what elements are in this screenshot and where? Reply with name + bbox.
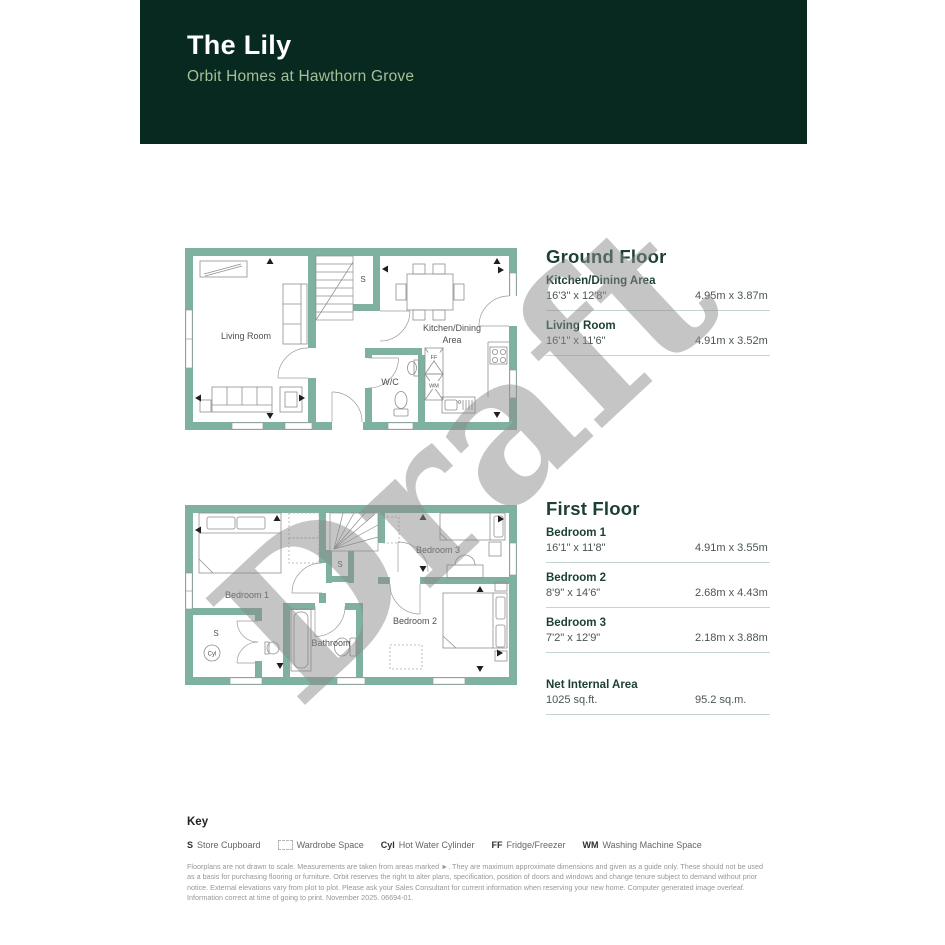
arrow-down-icon xyxy=(267,413,274,419)
bath xyxy=(291,609,311,671)
first-floor-plan: Bedroom 1 Bedroom 2 Bedroom 3 Bathroom S… xyxy=(185,505,517,685)
bedroom3-label: Bedroom 3 xyxy=(416,545,460,555)
ground-floor-heading: Ground Floor xyxy=(546,246,770,268)
arrow-up-icon xyxy=(420,514,427,520)
cupboard-label: S xyxy=(337,560,342,569)
side-table xyxy=(200,400,211,412)
sofa-main xyxy=(212,387,272,412)
dining-table xyxy=(396,264,464,320)
bedroom1-label: Bedroom 1 xyxy=(225,590,269,600)
page-subtitle: Orbit Homes at Hawthorn Grove xyxy=(187,68,414,86)
wardrobe-space-icon xyxy=(278,840,293,850)
fridge-freezer-unit xyxy=(425,348,443,374)
room-row: Bedroom 3 7'2" x 12'9" 2.18m x 3.88m xyxy=(546,617,770,653)
armchair xyxy=(280,387,302,412)
room-row: Kitchen/Dining Area 16'3" x 12'8" 4.95m … xyxy=(546,275,770,311)
room-metric: 4.91m x 3.55m xyxy=(695,542,768,554)
room-metric: 4.91m x 3.52m xyxy=(695,335,768,347)
bedroom3-chair xyxy=(447,555,483,578)
arrow-left-icon xyxy=(195,527,201,534)
row-divider xyxy=(546,607,770,608)
arrow-down-icon xyxy=(477,666,484,672)
first-stairs xyxy=(330,513,378,551)
ground-stairs xyxy=(316,256,353,320)
living-room-label: Living Room xyxy=(221,331,271,341)
key-item-washing: WM Washing Machine Space xyxy=(583,840,702,850)
room-row: Bedroom 1 16'1" x 11'8" 4.91m x 3.55m xyxy=(546,527,770,563)
arrow-down-icon xyxy=(494,412,501,418)
room-imperial: 16'1" x 11'8" xyxy=(546,542,606,554)
wc-basin xyxy=(408,360,420,376)
wardrobe-space-bed2 xyxy=(390,645,422,669)
row-divider xyxy=(546,562,770,563)
bed-single-3 xyxy=(440,513,505,540)
bedroom2-label: Bedroom 2 xyxy=(393,616,437,626)
row-divider xyxy=(546,355,770,356)
room-imperial: 8'9" x 14'6" xyxy=(546,587,600,599)
key-item-fridge: FF Fridge/Freezer xyxy=(491,840,565,850)
room-imperial: 7'2" x 12'9" xyxy=(546,632,600,644)
arrow-up-icon xyxy=(267,258,274,264)
nia-label: Net Internal Area xyxy=(546,679,770,691)
bed-double-2 xyxy=(443,593,507,648)
nia-imperial: 1025 sq.ft. xyxy=(546,694,597,706)
bed-double-1 xyxy=(199,513,281,573)
room-metric: 2.18m x 3.88m xyxy=(695,632,768,644)
arrow-up-icon xyxy=(274,515,281,521)
arrow-down-icon xyxy=(277,663,284,669)
ff-label: FF xyxy=(431,355,438,361)
store-label: S xyxy=(360,275,365,284)
store-label: S xyxy=(213,629,218,638)
page-title: The Lily xyxy=(187,30,291,61)
kitchen-label-line2: Area xyxy=(442,335,461,345)
room-name: Bedroom 3 xyxy=(546,617,770,629)
arrow-down-icon xyxy=(420,566,427,572)
room-imperial: 16'1" x 11'6" xyxy=(546,335,606,347)
bedside-table xyxy=(489,542,501,556)
header-banner: The Lily Orbit Homes at Hawthorn Grove xyxy=(140,0,807,144)
kitchen-label-line1: Kitchen/Dining xyxy=(423,323,481,333)
arrow-up-icon xyxy=(477,586,484,592)
key-heading: Key xyxy=(187,816,807,828)
arrow-up-icon xyxy=(494,258,501,264)
wc-label: W/C xyxy=(381,377,399,387)
key-items: S Store Cupboard Wardrobe Space Cyl Hot … xyxy=(187,840,807,850)
wm-label: WM xyxy=(429,384,439,390)
key-item-wardrobe: Wardrobe Space xyxy=(278,840,364,850)
landing-basin xyxy=(265,642,279,654)
room-imperial: 16'3" x 12'8" xyxy=(546,290,606,302)
arrow-right-icon xyxy=(497,650,503,657)
arrow-right-icon xyxy=(498,267,504,274)
ground-floor-dimensions: Ground Floor Kitchen/Dining Area 16'3" x… xyxy=(546,246,770,365)
room-name: Kitchen/Dining Area xyxy=(546,275,770,287)
sink-unit xyxy=(442,397,475,413)
wc-toilet xyxy=(394,392,408,417)
net-internal-area: Net Internal Area 1025 sq.ft. 95.2 sq.m. xyxy=(546,679,770,715)
nia-metric: 95.2 sq.m. xyxy=(695,694,746,706)
wardrobe-space-bed3 xyxy=(383,517,399,543)
kitchen-counter xyxy=(488,342,509,397)
sofa-side xyxy=(283,284,307,344)
wardrobe-space-bed1 xyxy=(289,513,319,563)
row-divider xyxy=(546,714,770,715)
key-item-store: S Store Cupboard xyxy=(187,840,261,850)
arrow-left-icon xyxy=(382,266,388,273)
key-item-cylinder: Cyl Hot Water Cylinder xyxy=(381,840,475,850)
draft-watermark: Draft xyxy=(33,30,897,890)
cyl-label: Cyl xyxy=(208,652,217,658)
room-name: Living Room xyxy=(546,320,770,332)
room-row: Bedroom 2 8'9" x 14'6" 2.68m x 4.43m xyxy=(546,572,770,608)
row-divider xyxy=(546,652,770,653)
floorplan-page: The Lily Orbit Homes at Hawthorn Grove xyxy=(0,0,945,945)
room-metric: 2.68m x 4.43m xyxy=(695,587,768,599)
first-floor-dimensions: First Floor Bedroom 1 16'1" x 11'8" 4.91… xyxy=(546,498,770,724)
disclaimer-text: Floorplans are not drawn to scale. Measu… xyxy=(187,862,772,904)
key-section: Key S Store Cupboard Wardrobe Space Cyl … xyxy=(187,816,807,850)
room-name: Bedroom 1 xyxy=(546,527,770,539)
room-metric: 4.95m x 3.87m xyxy=(695,290,768,302)
arrow-left-icon xyxy=(195,395,201,402)
ground-floor-plan: Living Room Kitchen/Dining Area W/C S FF… xyxy=(185,248,517,430)
bathroom-label: Bathroom xyxy=(311,638,350,648)
room-row: Living Room 16'1" x 11'6" 4.91m x 3.52m xyxy=(546,320,770,356)
room-name: Bedroom 2 xyxy=(546,572,770,584)
first-floor-heading: First Floor xyxy=(546,498,770,520)
row-divider xyxy=(546,310,770,311)
